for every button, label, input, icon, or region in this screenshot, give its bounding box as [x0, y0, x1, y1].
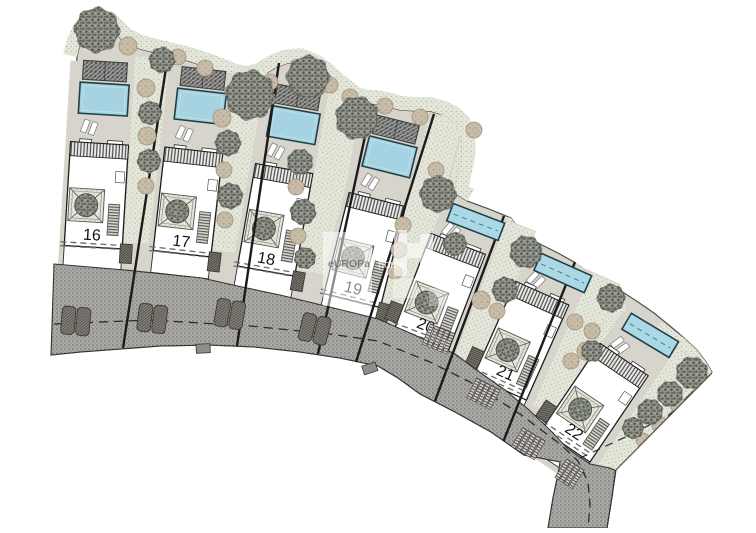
svg-text:18: 18 — [256, 249, 277, 269]
svg-text:17: 17 — [171, 233, 191, 252]
svg-text:eUROPa: eUROPa — [328, 258, 370, 270]
svg-text:home: home — [378, 259, 406, 271]
svg-text:16: 16 — [82, 227, 101, 245]
